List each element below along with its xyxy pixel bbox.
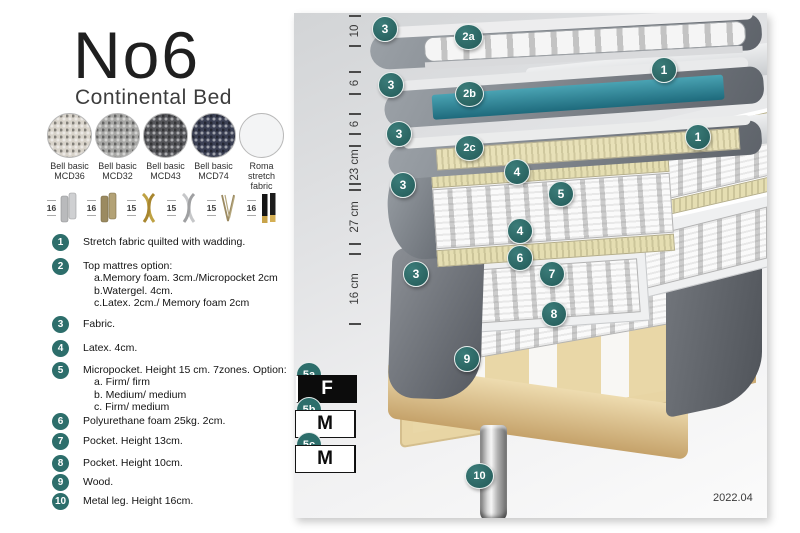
- fabric-swatch-label: Bell basicMCD32: [95, 161, 140, 181]
- legend-item-1: 1 Stretch fabric quilted with wadding.: [52, 234, 245, 251]
- dimension-16cm: 16 cm: [340, 253, 370, 325]
- legend-text: Stretch fabric quilted with wadding.: [83, 234, 245, 248]
- dimension-23cm: 23 cm: [340, 145, 370, 185]
- legend-text: Top mattres option: a.Memory foam. 3cm./…: [83, 258, 278, 309]
- fabric-swatch: Romastretch fabric: [239, 113, 284, 191]
- fabric-swatch: Bell basicMCD32: [95, 113, 140, 191]
- diagram-badge-3: 3: [386, 121, 412, 147]
- diagram-badge-3: 3: [390, 172, 416, 198]
- fabric-swatch-label: Bell basicMCD74: [191, 161, 236, 181]
- firmness-cell: M: [295, 445, 355, 473]
- legend-number-badge: 2: [52, 258, 69, 275]
- legend-text: Polyurethane foam 25kg. 2cm.: [83, 413, 225, 427]
- tapered-black-gold-leg-icon: [258, 190, 280, 226]
- fabric-swatch-label: Bell basicMCD36: [47, 161, 92, 181]
- leg-option: 15: [124, 187, 163, 229]
- legend-text: Micropocket. Height 15 cm. 7zones. Optio…: [83, 362, 287, 413]
- leg-option: 16: [44, 187, 83, 229]
- leg-option: 16: [244, 187, 283, 229]
- legend-text: Pocket. Height 10cm.: [83, 455, 183, 469]
- leg-options: 16 16 15 15 15 16: [44, 187, 283, 229]
- diagram-badge-2a: 2a: [454, 24, 483, 50]
- leg-option: 15: [164, 187, 203, 229]
- diagram-badge-2b: 2b: [455, 81, 484, 107]
- fabric-drape-corner: [387, 247, 484, 400]
- diagram-badge-1: 1: [651, 57, 677, 83]
- page-subtitle: Continental Bed: [75, 86, 232, 110]
- legend-text: Fabric.: [83, 316, 115, 330]
- diagram-badge-3: 3: [403, 261, 429, 287]
- legend-item-6: 6 Polyurethane foam 25kg. 2cm.: [52, 413, 225, 430]
- legend-item-10: 10 Metal leg. Height 16cm.: [52, 493, 193, 510]
- version-label: 2022.04: [713, 492, 753, 504]
- fabric-swatches: Bell basicMCD36 Bell basicMCD32 Bell bas…: [47, 113, 284, 191]
- twisted-silver-leg-icon: [178, 190, 200, 226]
- diagram-badge-6: 6: [507, 245, 533, 271]
- cylinder-silver-leg-icon: [58, 190, 80, 226]
- fabric-swatch-circle: [239, 113, 284, 158]
- diagram-badge-7: 7: [539, 261, 565, 287]
- legend-number-badge: 4: [52, 340, 69, 357]
- diagram-badge-10: 10: [465, 463, 494, 489]
- page-title: No6: [73, 22, 200, 88]
- dimension-10: 10: [340, 15, 370, 47]
- legend-item-7: 7 Pocket. Height 13cm.: [52, 433, 183, 450]
- diagram-badge-4: 4: [507, 218, 533, 244]
- legend-text: Wood.: [83, 474, 113, 488]
- legend-text: Pocket. Height 13cm.: [83, 433, 183, 447]
- fabric-swatch-label: Bell basicMCD43: [143, 161, 188, 181]
- fabric-swatch: Bell basicMCD43: [143, 113, 188, 191]
- dimension-27cm: 27 cm: [340, 189, 370, 245]
- diagram-badge-5: 5: [548, 181, 574, 207]
- legend-number-badge: 1: [52, 234, 69, 251]
- legend-number-badge: 8: [52, 455, 69, 472]
- fabric-swatch-circle: [47, 113, 92, 158]
- twisted-gold-leg-icon: [138, 190, 160, 226]
- fabric-swatch-circle: [143, 113, 188, 158]
- cylinder-bronze-leg-icon: [98, 190, 120, 226]
- leg-option: 15: [204, 187, 243, 229]
- diagram-badge-4: 4: [504, 159, 530, 185]
- legend-item-5: 5 Micropocket. Height 15 cm. 7zones. Opt…: [52, 362, 287, 413]
- legend-item-9: 9 Wood.: [52, 474, 113, 491]
- legend-number-badge: 10: [52, 493, 69, 510]
- legend-number-badge: 3: [52, 316, 69, 333]
- legend-item-8: 8 Pocket. Height 10cm.: [52, 455, 183, 472]
- diagram-badge-9: 9: [454, 346, 480, 372]
- fabric-swatch: Bell basicMCD36: [47, 113, 92, 191]
- bed-diagram-panel: 10 6 6 23 cm 27 cm 16 cm 3 2a 1 3 2b 1 3…: [294, 13, 767, 518]
- legend-text: Latex. 4cm.: [83, 340, 137, 354]
- dimension-6b: 6: [340, 113, 370, 135]
- legend-text: Metal leg. Height 16cm.: [83, 493, 193, 507]
- diagram-badge-2c: 2c: [455, 135, 484, 161]
- leg-option: 16: [84, 187, 123, 229]
- diagram-badge-3: 3: [378, 72, 404, 98]
- legend-number-badge: 7: [52, 433, 69, 450]
- diagram-badge-1: 1: [685, 124, 711, 150]
- diagram-badge-8: 8: [541, 301, 567, 327]
- legend-number-badge: 9: [52, 474, 69, 491]
- fabric-swatch-circle: [95, 113, 140, 158]
- legend-number-badge: 5: [52, 362, 69, 379]
- fabric-swatch-circle: [191, 113, 236, 158]
- legend-item-3: 3 Fabric.: [52, 316, 115, 333]
- diagram-badge-3: 3: [372, 16, 398, 42]
- fabric-swatch: Bell basicMCD74: [191, 113, 236, 191]
- dimension-6a: 6: [340, 71, 370, 95]
- hairpin-leg-icon: [218, 190, 240, 226]
- legend-item-2: 2 Top mattres option: a.Memory foam. 3cm…: [52, 258, 278, 309]
- legend-number-badge: 6: [52, 413, 69, 430]
- legend-item-4: 4 Latex. 4cm.: [52, 340, 137, 357]
